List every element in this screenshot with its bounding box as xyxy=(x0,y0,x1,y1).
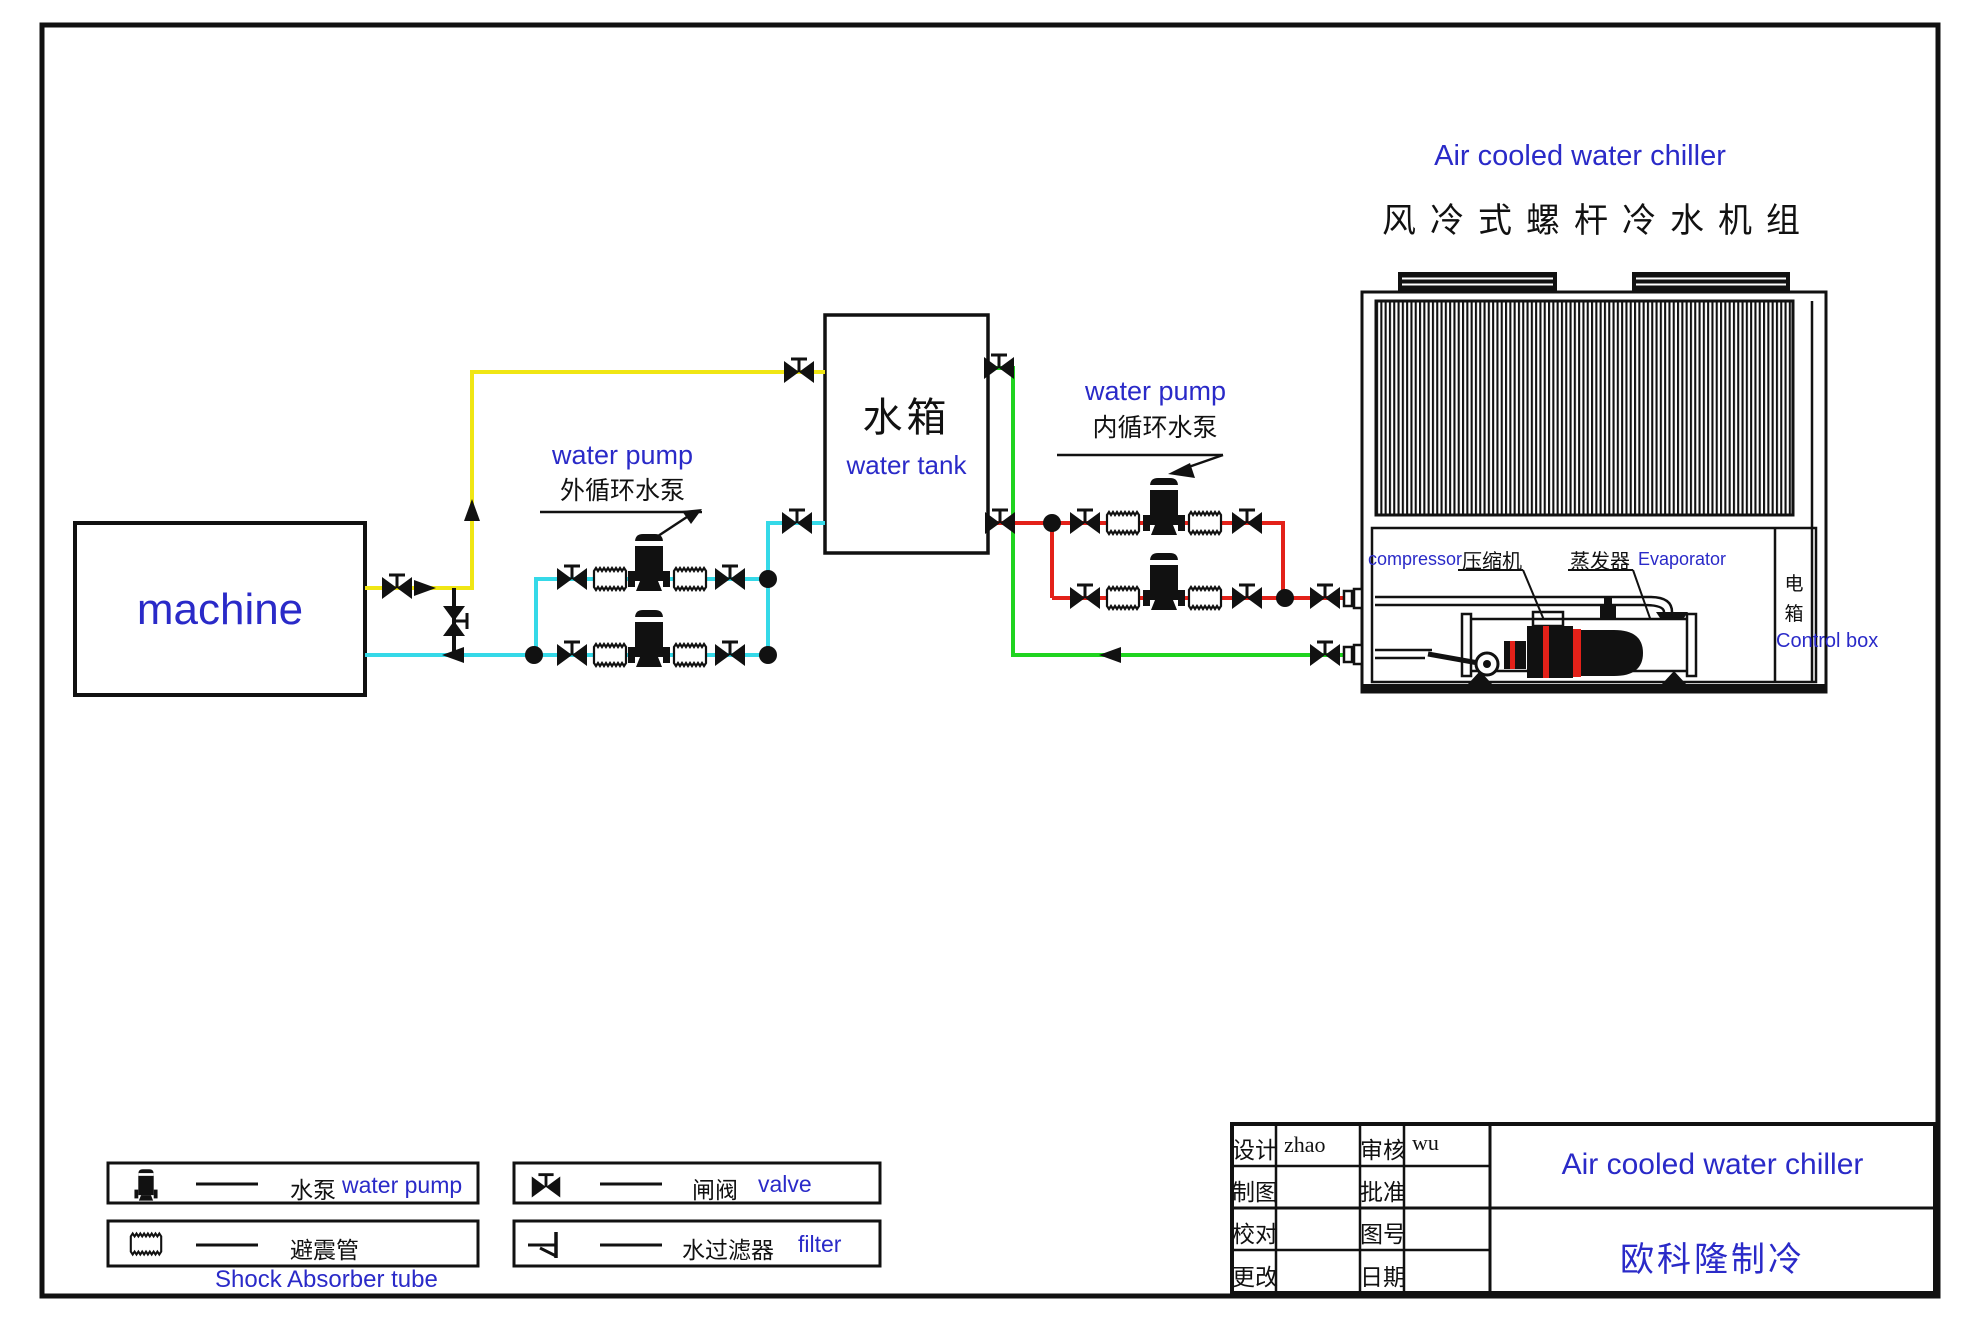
valve-icon xyxy=(715,566,745,590)
shock-absorber-icon xyxy=(1189,587,1221,609)
legend-valve-zh: 闸阀 xyxy=(692,1171,738,1205)
tb-label-approve: 批准 xyxy=(1360,1173,1404,1207)
bypass-valve-icon xyxy=(443,606,467,636)
valve-icon xyxy=(1070,585,1100,609)
valve-icon xyxy=(382,575,412,599)
shock-absorber-icon xyxy=(594,568,626,590)
flow-arrow-left-icon xyxy=(1099,647,1121,663)
shock-absorber-icon xyxy=(1189,512,1221,534)
legend-pump-zh: 水泵 xyxy=(290,1171,336,1205)
pipe-connectors xyxy=(1344,589,1362,664)
control-box-label-zh: 电箱 xyxy=(1782,570,1806,631)
evaporator-label-en: Evaporator xyxy=(1638,549,1726,570)
water-tank-label-zh: 水箱 xyxy=(825,385,988,443)
valve-icon xyxy=(1310,585,1340,609)
shock-absorber-icon xyxy=(674,644,706,666)
pump-icon xyxy=(1143,478,1185,535)
valve-icon xyxy=(715,642,745,666)
flow-arrow-up-icon xyxy=(464,499,480,521)
condenser-coil xyxy=(1376,301,1793,515)
tb-label-figno: 图号 xyxy=(1360,1215,1404,1249)
valve-icon xyxy=(557,642,587,666)
tb-label-change: 更改 xyxy=(1232,1258,1276,1292)
compressor-label-en: compressor xyxy=(1368,549,1462,570)
external-pump-label-en: water pump xyxy=(540,440,705,471)
legend-shock-absorber-icon xyxy=(131,1234,161,1255)
valve-icon xyxy=(1070,510,1100,534)
tb-label-design: 设计 xyxy=(1232,1131,1276,1165)
compressor-label-zh: 压缩机 xyxy=(1462,545,1522,574)
valve-icon xyxy=(782,510,812,534)
machine-label: machine xyxy=(75,585,365,635)
drawing-sheet: Air cooled water chiller 风冷式螺杆冷水机组 machi… xyxy=(0,0,1965,1323)
legend-shock-zh: 避震管 xyxy=(290,1231,359,1265)
chiller-base xyxy=(1362,684,1826,692)
shock-absorber-icon xyxy=(1107,512,1139,534)
external-pump-label-zh: 外循环水泵 xyxy=(540,471,705,507)
internal-pump-label-en: water pump xyxy=(1073,376,1238,407)
valve-icon xyxy=(1310,642,1340,666)
valve-icon xyxy=(1232,510,1262,534)
legend-valve-icon xyxy=(532,1175,561,1198)
legend-filter-en: filter xyxy=(798,1231,841,1258)
shock-absorber-icon xyxy=(1107,587,1139,609)
flow-arrow-right-icon xyxy=(414,580,436,596)
valve-icon xyxy=(784,359,814,383)
legend-valve-en: valve xyxy=(758,1171,812,1198)
legend-filter-icon xyxy=(528,1232,556,1258)
chiller-unit xyxy=(1344,272,1826,692)
legend-pump-en: water pump xyxy=(342,1172,462,1199)
tb-label-review: 审核 xyxy=(1360,1131,1404,1165)
pump-icon xyxy=(628,610,670,667)
tb-label-draft: 制图 xyxy=(1232,1173,1276,1207)
legend-pump-icon xyxy=(134,1169,157,1200)
tb-value-design: zhao xyxy=(1284,1132,1326,1158)
pump-icon xyxy=(1143,553,1185,610)
legend-filter-zh: 水过滤器 xyxy=(682,1231,774,1265)
pumps xyxy=(628,478,1185,667)
legend-shock-en: Shock Absorber tube xyxy=(215,1266,438,1294)
pump-icon xyxy=(628,534,670,591)
control-box-label-en: Control box xyxy=(1776,630,1878,653)
evaporator-label-zh: 蒸发器 xyxy=(1570,545,1630,574)
valve-icon xyxy=(557,566,587,590)
valve-icon xyxy=(1232,585,1262,609)
internal-pump-label-zh: 内循环水泵 xyxy=(1070,408,1240,444)
shock-absorbers xyxy=(594,512,1221,666)
tb-product-name: Air cooled water chiller xyxy=(1490,1148,1935,1182)
fan-bar-icon xyxy=(1632,272,1790,292)
fan-bar-icon xyxy=(1398,272,1557,292)
tb-label-date: 日期 xyxy=(1360,1258,1404,1292)
shock-absorber-icon xyxy=(594,644,626,666)
drawing-title-zh: 风冷式螺杆冷水机组 xyxy=(1368,193,1828,242)
drawing-title-en: Air cooled water chiller xyxy=(1395,140,1765,173)
shock-absorber-icon xyxy=(674,568,706,590)
water-tank-label-en: water tank xyxy=(825,450,988,481)
tb-company-name: 欧科隆制冷 xyxy=(1490,1232,1935,1281)
tb-label-check: 校对 xyxy=(1232,1215,1276,1249)
tb-value-review: wu xyxy=(1412,1130,1439,1156)
